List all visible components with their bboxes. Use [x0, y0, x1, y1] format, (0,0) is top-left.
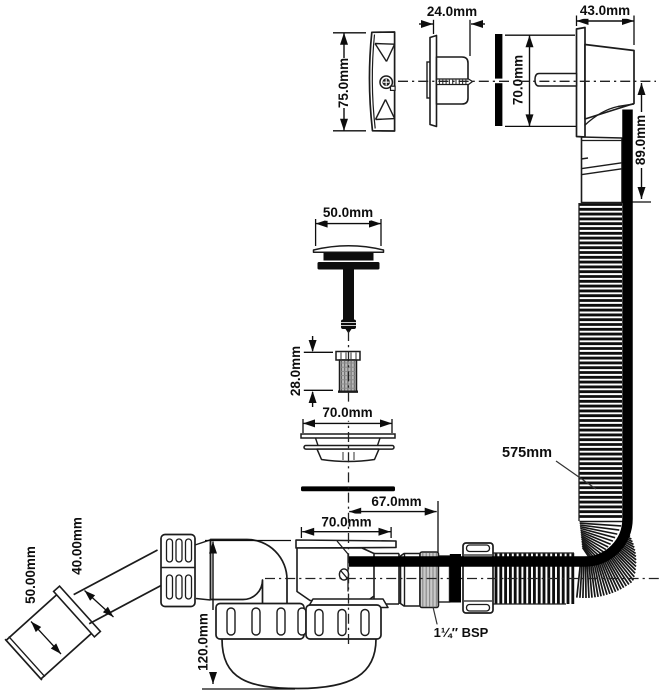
svg-text:70.0mm: 70.0mm [321, 515, 371, 530]
svg-text:67.0mm: 67.0mm [371, 494, 421, 509]
svg-text:43.0mm: 43.0mm [580, 3, 630, 18]
svg-text:50.0mm: 50.0mm [323, 205, 373, 220]
svg-text:50.00mm: 50.00mm [23, 546, 38, 604]
svg-text:70.0mm: 70.0mm [511, 55, 526, 105]
svg-text:70.0mm: 70.0mm [322, 405, 372, 420]
svg-text:1¼″ BSP: 1¼″ BSP [434, 625, 489, 640]
svg-text:40.00mm: 40.00mm [70, 517, 85, 575]
svg-text:575mm: 575mm [502, 445, 552, 461]
svg-text:120.0mm: 120.0mm [196, 613, 211, 671]
svg-text:28.0mm: 28.0mm [288, 346, 303, 396]
svg-text:24.0mm: 24.0mm [427, 4, 477, 19]
svg-text:75.0mm: 75.0mm [336, 58, 351, 108]
svg-text:89.0mm: 89.0mm [633, 115, 648, 165]
